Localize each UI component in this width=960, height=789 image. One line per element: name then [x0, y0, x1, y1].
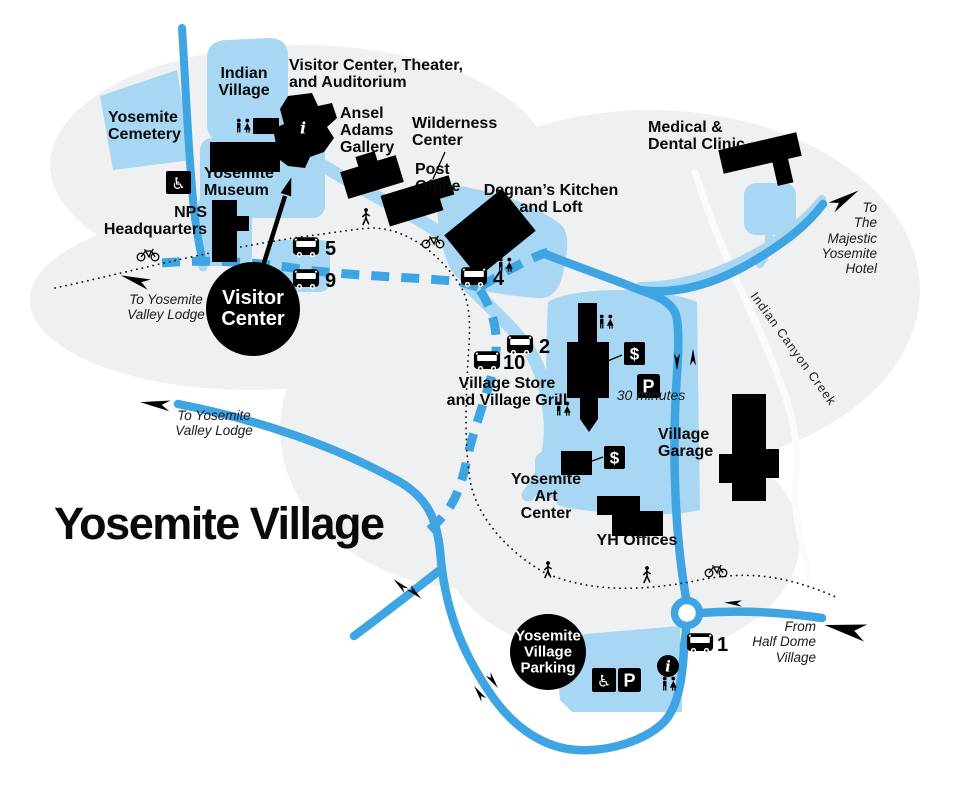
label-yosemite-museum: Yosemite Museum — [204, 166, 274, 200]
label-wilderness-center: Wilderness Center — [412, 116, 497, 150]
label-to-majestic: To The Majestic Yosemite Hotel — [821, 200, 877, 276]
bus-stop-9: 9 — [325, 270, 336, 292]
label-art-center: Yosemite Art Center — [511, 472, 581, 522]
parking-icon: P — [618, 668, 641, 692]
svg-text:♿: ♿ — [597, 672, 611, 691]
label-to-lodge-top: To Yosemite Valley Lodge — [127, 292, 205, 323]
bus-stop-5: 5 — [325, 238, 336, 260]
southwest-stub-road — [354, 570, 440, 636]
label-yosemite-cemetery: Yosemite Cemetery — [108, 110, 181, 144]
to-lodge-mid-arrow — [139, 397, 170, 411]
yosemite-village-map: i i $ $ P P ♿ ♿ 5 — [0, 0, 960, 789]
bus-icon — [474, 351, 500, 371]
label-to-lodge-mid: To Yosemite Valley Lodge — [175, 408, 253, 439]
wheelchair-icon: ♿ — [592, 668, 616, 692]
roundabout — [675, 601, 700, 626]
bus-icon — [461, 267, 487, 287]
label-post-office: Post Office — [415, 162, 460, 196]
label-parking-30-minutes: 30 minutes — [617, 388, 685, 404]
from-half-dome-arrow — [823, 617, 868, 642]
svg-text:i: i — [300, 119, 306, 138]
svg-text:♿: ♿ — [171, 174, 185, 193]
atm-icon: $ — [624, 342, 645, 365]
label-indian-village: Indian Village — [218, 66, 269, 100]
wheelchair-icon: ♿ — [166, 171, 191, 194]
map-title: Yosemite Village — [54, 498, 384, 550]
svg-text:$: $ — [610, 449, 620, 468]
bus-stop-4: 4 — [493, 268, 505, 290]
bus-icon — [293, 237, 319, 257]
label-village-store: Village Store and Village Grill — [447, 376, 568, 410]
visitor-center-badge-label: Visitor Center — [221, 288, 284, 330]
svg-text:$: $ — [630, 345, 640, 364]
label-degnans: Degnan’s Kitchen and Loft — [484, 183, 619, 217]
svg-text:P: P — [623, 671, 635, 691]
label-village-garage: Village Garage — [658, 427, 713, 461]
info-icon: i — [657, 655, 679, 677]
bus-icon — [687, 633, 713, 653]
bus-stop-1: 1 — [717, 634, 728, 656]
info-icon: i — [292, 117, 315, 140]
bus-stop-10: 10 — [503, 352, 525, 374]
label-medical-dental: Medical & Dental Clinic — [648, 120, 745, 154]
village-parking-badge-label: Yosemite Village Parking — [515, 628, 581, 675]
atm-icon: $ — [604, 446, 625, 469]
bus-icon — [293, 269, 319, 289]
svg-text:i: i — [665, 658, 671, 676]
bus-stop-2: 2 — [539, 336, 550, 358]
label-yh-offices: YH Offices — [597, 533, 678, 550]
label-visitor-center-theater: Visitor Center, Theater, and Auditorium — [289, 58, 463, 92]
label-from-half-dome: From Half Dome Village — [752, 619, 816, 665]
label-nps-headquarters: NPS Headquarters — [104, 205, 207, 239]
label-ansel-adams-gallery: Ansel Adams Gallery — [340, 106, 394, 156]
